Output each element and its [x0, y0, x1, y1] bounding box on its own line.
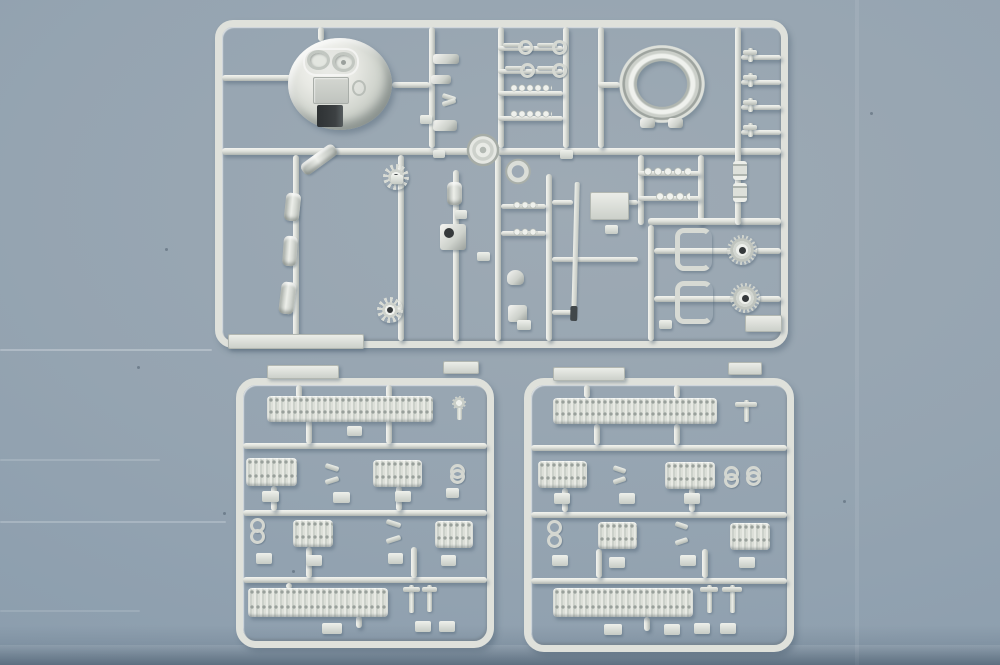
photo-surface [0, 0, 1000, 665]
track-run-long [553, 588, 693, 617]
sprue-gate-tab [664, 624, 680, 635]
axle-pin [284, 192, 302, 221]
sprue-gate-tab [322, 623, 342, 634]
sprue-gate-tab [388, 553, 403, 564]
sprue-runner [386, 420, 392, 444]
valve-fitting [507, 270, 524, 285]
track-end-link [450, 396, 468, 420]
surface-speck [223, 512, 226, 515]
sprue-runner [648, 218, 781, 225]
sprue-gate-tab [684, 493, 700, 504]
sprue-runner [531, 512, 787, 518]
sprue-runner [596, 549, 602, 578]
surface-streak [855, 0, 859, 665]
sprue-gate-tab [720, 623, 736, 634]
surface-speck [165, 248, 168, 251]
sprue-runner [648, 225, 654, 341]
sprue-gate-tab [609, 557, 625, 568]
track-end-link [545, 520, 562, 548]
edge-tab [267, 365, 339, 379]
surface-streak [0, 610, 140, 612]
sprue-gate-tab [420, 115, 432, 124]
sprue-runner [644, 617, 650, 631]
sprue-gate-tab [739, 557, 755, 568]
track-end-link [422, 585, 437, 612]
track-end-link [383, 518, 404, 545]
turret-dome-sidemark [352, 80, 366, 96]
track-end-link [735, 400, 757, 422]
sprue-gate-tab [395, 491, 411, 502]
mantlet-bore [444, 228, 454, 238]
sprue-runner [392, 82, 430, 88]
sprue-runner [755, 248, 781, 254]
clamp-ring [504, 158, 532, 185]
track-run-short [293, 520, 333, 547]
sprue-runner [674, 424, 680, 445]
sprue-gate-tab [680, 555, 696, 566]
turret-ring-tab [668, 118, 683, 128]
track-run-short [730, 523, 770, 550]
torsion-bar-rod [643, 166, 691, 177]
turret-gun-opening [317, 105, 343, 127]
track-run-long [553, 398, 717, 424]
idler-gear-wheel [377, 297, 403, 323]
sprue-runner [546, 174, 552, 341]
sprue-runner [318, 27, 324, 41]
sprue-gate-tab [439, 621, 455, 632]
track-sprue-right [524, 362, 794, 652]
spool-fitting [733, 183, 747, 202]
main-parts-sprue [215, 20, 788, 348]
track-end-link [448, 464, 462, 484]
mounting-plate [590, 192, 629, 220]
small-hook-fitting [433, 54, 459, 64]
track-end-link [700, 585, 718, 613]
sprue-runner [222, 148, 781, 155]
surface-streak [0, 459, 160, 461]
sprue-runner [306, 420, 312, 444]
sprue-runner [552, 200, 573, 205]
sprue-gate-tab [554, 493, 570, 504]
surface-streak [0, 349, 212, 351]
mantlet-block [440, 224, 466, 250]
track-run-short [435, 521, 473, 548]
edge-tab [443, 361, 479, 374]
eyelet-rod [537, 40, 567, 50]
small-hook-fitting [743, 73, 757, 87]
turret-hatch-right [332, 52, 355, 72]
sprue-gate-tab [441, 555, 456, 566]
sprue-gate-tab [415, 621, 431, 632]
sprue-gate-tab [433, 150, 445, 158]
sprue-runner [531, 578, 787, 584]
sprue-runner [584, 385, 590, 398]
turret-ring-tab [640, 118, 655, 128]
mounting-plate [228, 334, 364, 349]
track-run-short [665, 462, 715, 489]
eyelet-rod [537, 63, 567, 73]
track-end-link [248, 518, 267, 544]
sprue-gate-tab [446, 488, 459, 498]
eyelet-rod [503, 40, 533, 50]
sprue-runner [495, 155, 501, 341]
bead-link-rod [510, 84, 552, 92]
small-hook-fitting [743, 48, 757, 62]
track-end-link [610, 464, 628, 486]
bead-link-rod [510, 110, 552, 118]
track-end-link [403, 585, 420, 613]
road-wheel-disc [466, 133, 500, 167]
sprue-gate-tab [605, 225, 618, 234]
surface-speck [843, 500, 846, 503]
surface-speck [137, 366, 140, 369]
sprue-gate-tab [517, 320, 531, 330]
track-run-short [246, 458, 297, 486]
sprue-runner [702, 549, 708, 578]
track-run-short [538, 461, 587, 488]
c-bracket [675, 228, 712, 271]
sprue-gate-tab [333, 492, 350, 503]
axle-pin [282, 236, 298, 267]
track-run-long [248, 588, 388, 617]
torsion-bar-rod [655, 191, 690, 201]
track-end-link [722, 585, 742, 613]
eyelet-rod [505, 63, 535, 73]
sprue-gate-tab [560, 150, 573, 159]
sprue-runner [758, 296, 781, 302]
small-hook-fitting [439, 92, 459, 108]
sprue-runner [243, 510, 487, 516]
mounting-plate [745, 315, 782, 332]
sprue-gate-tab [306, 555, 322, 566]
sprue-runner [594, 424, 600, 445]
sprue-gate-tab [391, 175, 403, 184]
sprue-runner [243, 577, 487, 583]
sprue-runner [411, 547, 417, 578]
small-drum-fitting [447, 182, 462, 205]
track-sprue-left [236, 360, 494, 648]
sprue-runner [552, 257, 638, 262]
sprue-gate-tab [262, 491, 279, 502]
sprue-runner [674, 385, 680, 398]
small-hook-fitting [743, 98, 757, 112]
small-hook-fitting [431, 75, 451, 84]
track-end-link [672, 520, 690, 547]
turret-ring [618, 44, 706, 124]
spool-fitting [733, 161, 747, 180]
surface-speck [870, 112, 873, 115]
sprue-runner [698, 155, 704, 225]
sprue-gate-tab [659, 320, 672, 329]
edge-tab [728, 362, 762, 375]
drive-sprocket [727, 235, 757, 265]
sprue-gate-tab [552, 555, 568, 566]
track-run-long [267, 396, 433, 422]
surface-streak [0, 521, 226, 523]
track-end-link [744, 466, 757, 486]
turret-dome-panel [313, 77, 349, 104]
sprue-gate-tab [455, 210, 467, 219]
small-hook-fitting [433, 120, 457, 131]
track-end-link [322, 462, 342, 486]
small-hook-fitting [743, 123, 757, 137]
sprue-runner [531, 445, 787, 451]
sprue-gate-tab [694, 623, 710, 634]
track-run-short [373, 460, 422, 487]
sprue-gate-tab [256, 553, 272, 564]
sprue-gate-tab [477, 252, 490, 261]
surface-shadow-band [0, 645, 1000, 665]
sprue-runner [222, 75, 292, 81]
sprue-runner [356, 616, 362, 628]
sprue-runner [598, 82, 620, 88]
turret-dome [288, 38, 392, 130]
c-bracket [675, 281, 713, 324]
track-end-link [722, 466, 740, 488]
bead-link-rod [513, 228, 538, 237]
sprue-gate-tab [347, 426, 362, 436]
bead-link-rod [513, 201, 538, 210]
turret-hatch-left [307, 50, 330, 70]
sprue-gate-tab [604, 624, 622, 635]
sprue-gate-tab [619, 493, 635, 504]
track-run-short [598, 522, 637, 549]
edge-tab [553, 367, 625, 381]
drive-sprocket [730, 283, 760, 313]
sprue-runner [243, 443, 487, 449]
